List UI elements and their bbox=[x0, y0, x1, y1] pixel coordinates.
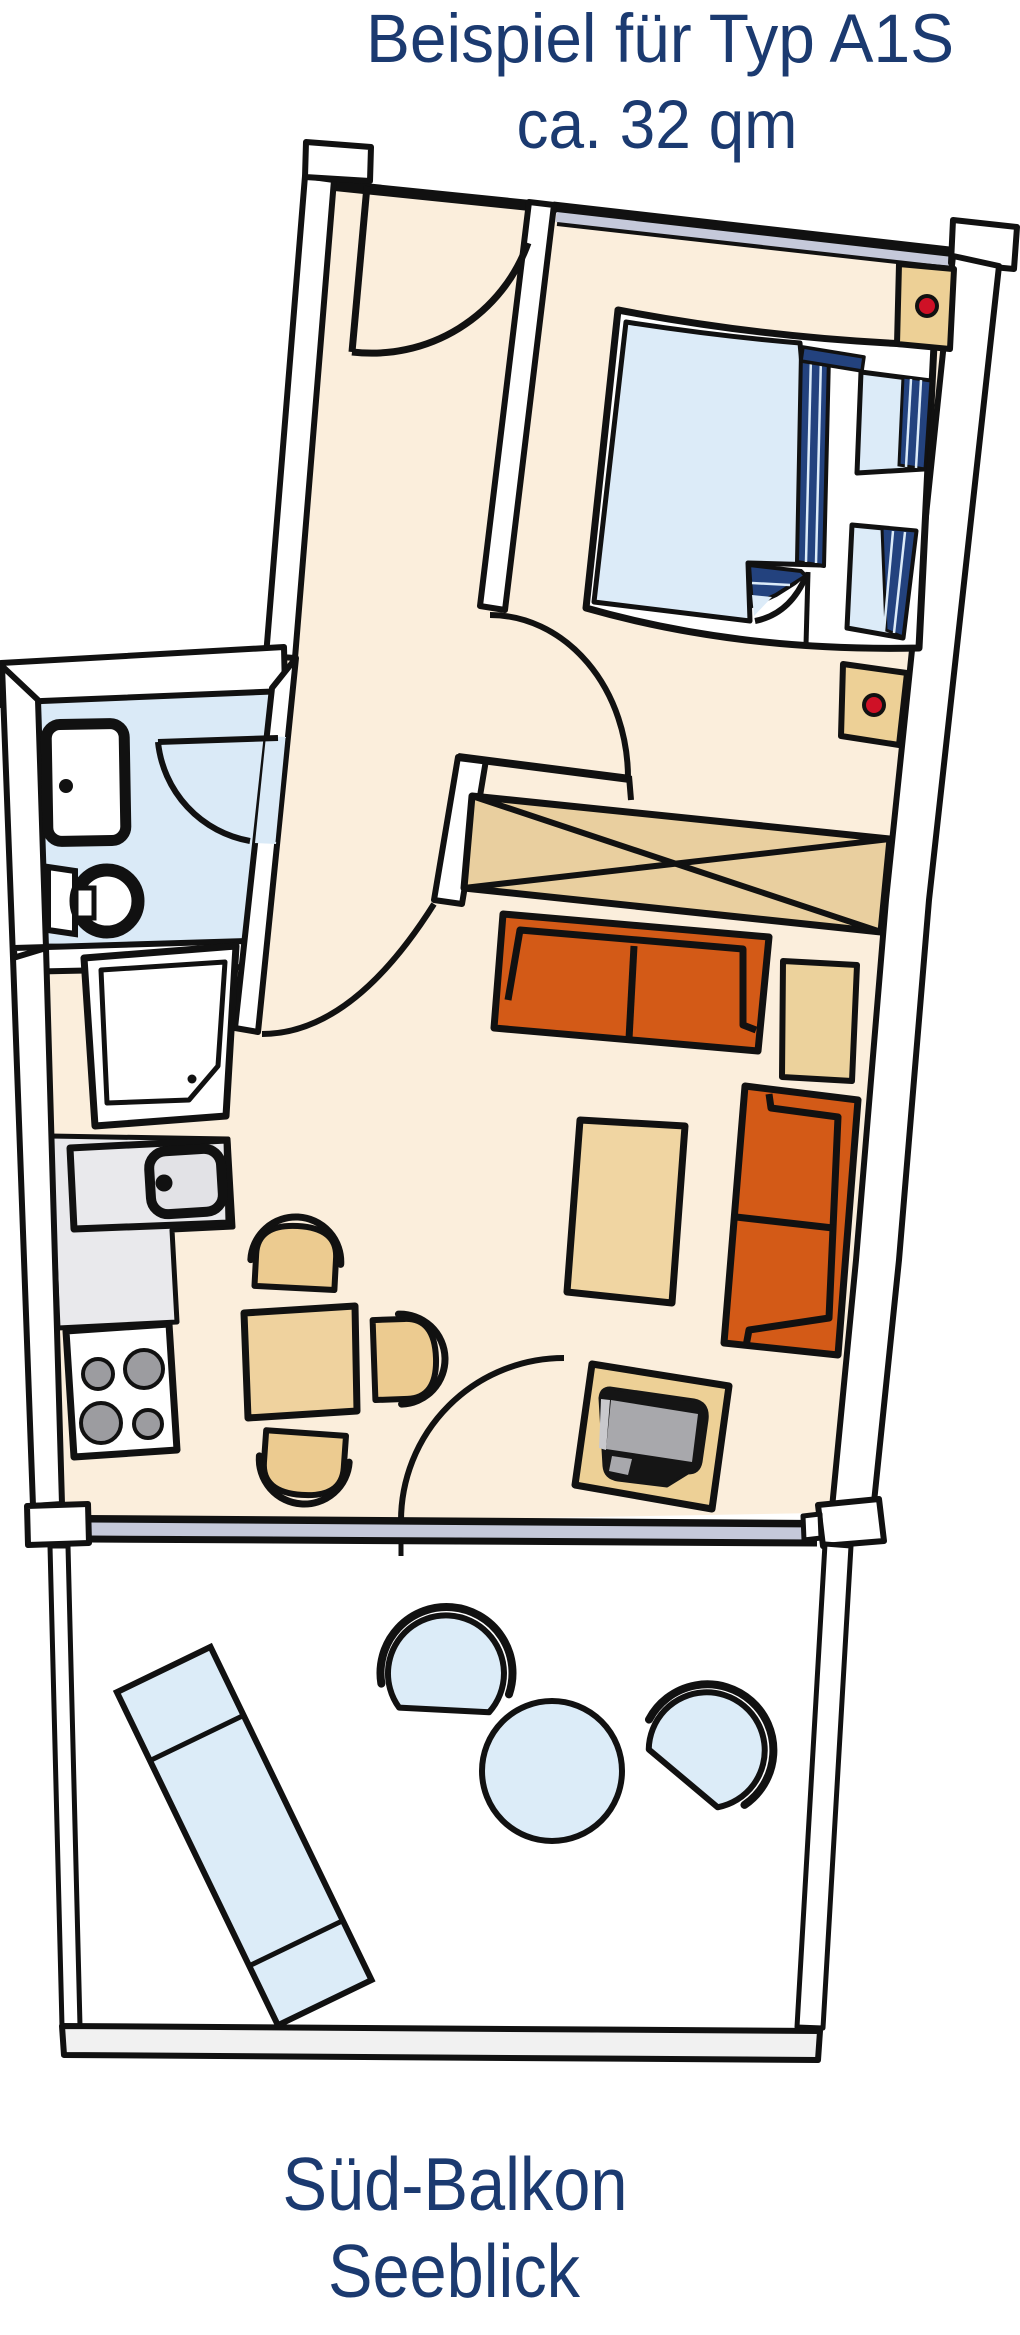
svg-text:Seeblick: Seeblick bbox=[328, 2229, 580, 2313]
svg-text:Süd-Balkon: Süd-Balkon bbox=[283, 2142, 628, 2226]
svg-text:ca. 32 qm: ca. 32 qm bbox=[517, 86, 798, 163]
svg-text:Beispiel für Typ A1S: Beispiel für Typ A1S bbox=[366, 0, 954, 77]
